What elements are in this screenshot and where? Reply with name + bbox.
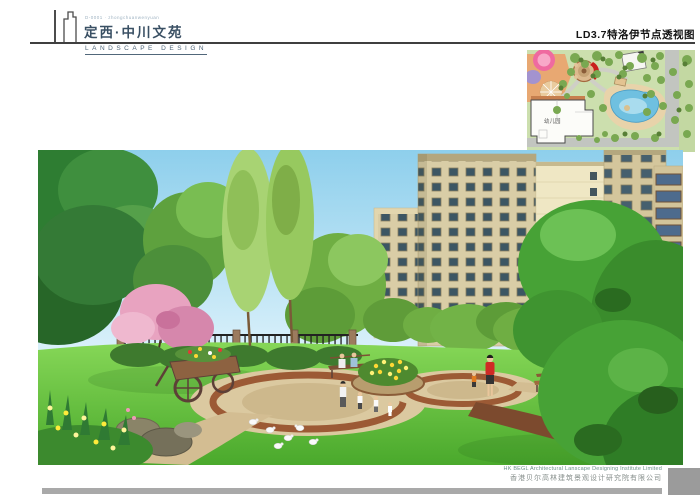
child-1 [358,392,363,409]
toddler [388,402,392,416]
project-title: 定西·中川文苑 [84,21,184,41]
site-plan-inset: 幼儿园 [527,50,695,152]
landscape-design-subtitle: LANDSCAPE DESIGN [85,45,207,55]
logo-caption: D-0001 · zhongchuanwenyuan [85,15,159,20]
sheet-title: LD3.7特洛伊节点透视图 [576,27,695,42]
company-name-en: HK BEGL Architectural Lanscape Designing… [504,466,662,474]
inset-kindergarten-building: 幼儿园 [531,96,593,143]
footer-gray-bar [42,488,662,494]
perspective-rendering [38,150,683,465]
footer-corner-block [668,468,700,495]
logo-vertical-line [54,10,56,42]
company-name-cn: 香港贝尔高林建筑景观设计研究院有限公司 [504,474,662,484]
presentation-sheet: D-0001 · zhongchuanwenyuan 定西·中川文苑 LANDS… [0,0,700,495]
header-rule [30,42,695,44]
tower-logo-icon [62,11,80,42]
inset-kindergarten-label: 幼儿园 [544,117,561,125]
child-orange [472,372,477,387]
child-2 [374,396,379,412]
company-info: HK BEGL Architectural Lanscape Designing… [504,466,662,484]
mother-white [340,381,347,407]
